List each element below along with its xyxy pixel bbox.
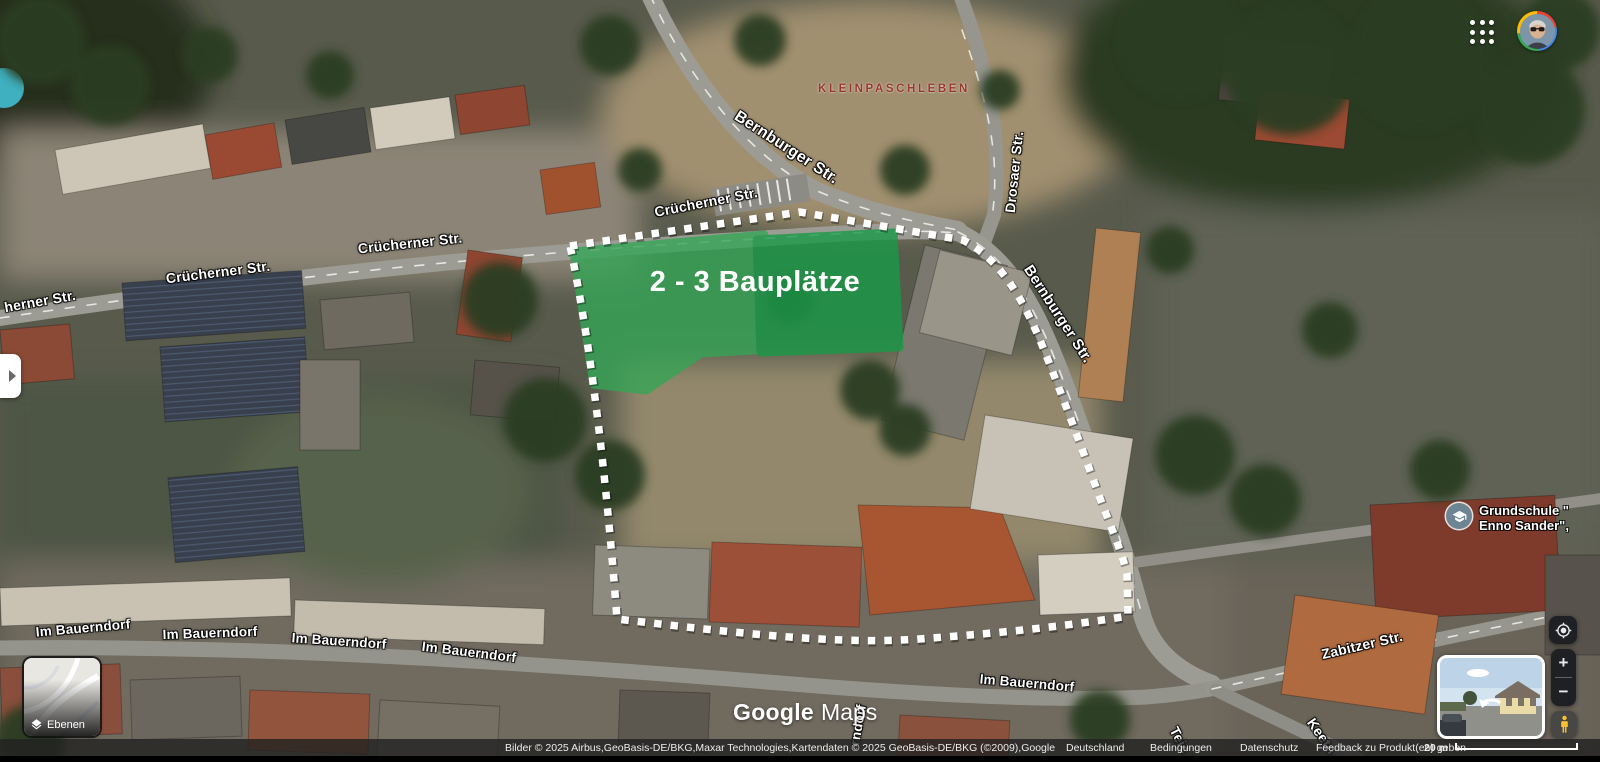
link-terms[interactable]: Bedingungen [1150,742,1212,754]
bottom-black-strip [0,756,1600,762]
scale-label: 20 m [1424,742,1448,754]
locate-icon [1555,622,1572,639]
zoom-control: + − [1551,649,1576,706]
site-annotation-label: 2 - 3 Bauplätze [630,266,880,299]
pegman-button[interactable] [1551,711,1577,738]
poi-grundschule-label: Grundschule "Enno Sander", [1479,503,1569,533]
layers-icon [30,718,43,731]
account-avatar-button[interactable] [1517,11,1557,51]
poi-grundschule[interactable]: Grundschule "Enno Sander", [1446,503,1569,533]
chevron-right-icon [9,370,16,382]
streetview-preview-thumbnail[interactable] [1437,655,1545,739]
locality-label: KLEINPASCHLEBEN [818,83,970,95]
map-credits: Bilder © 2025 Airbus,GeoBasis-DE/BKG,Max… [505,742,1055,754]
scale-bar [1455,743,1578,750]
side-panel-expand-button[interactable] [0,354,21,398]
zoom-in-button[interactable]: + [1551,649,1576,677]
attribution-bar: Bilder © 2025 Airbus,GeoBasis-DE/BKG,Max… [0,739,1600,756]
google-apps-grid-button[interactable] [1467,17,1497,47]
zoom-out-button[interactable]: − [1551,678,1576,706]
avatar-photo [1520,14,1555,49]
school-icon [1446,503,1472,529]
layers-button-label: Ebenen [47,719,85,731]
link-privacy[interactable]: Datenschutz [1240,742,1298,754]
link-country[interactable]: Deutschland [1066,742,1124,754]
layers-minimap-button[interactable]: Ebenen [24,658,100,736]
streetview-preview-image [1440,658,1542,736]
google-maps-logo[interactable]: GoogleMaps [733,699,877,726]
google-maps-app: 2 - 3 Bauplätze KLEINPASCHLEBEN Bernburg… [0,0,1600,762]
my-location-button[interactable] [1549,616,1577,644]
pegman-icon [1557,715,1572,734]
